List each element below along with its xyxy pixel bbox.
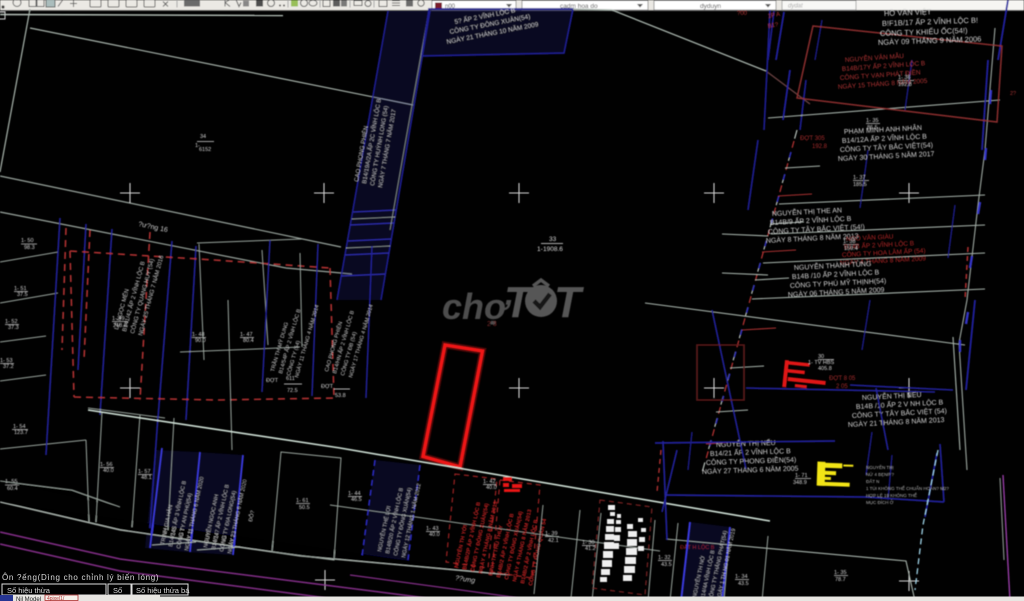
svg-text:90.0: 90.0 bbox=[195, 338, 206, 344]
svg-text:53.8: 53.8 bbox=[335, 393, 346, 399]
svg-text:60.4: 60.4 bbox=[7, 486, 18, 492]
svg-text:Nil Model: Nil Model bbox=[16, 597, 41, 601]
svg-text:185.5: 185.5 bbox=[853, 182, 867, 188]
svg-text:NGUYỄN THỊ: NGUYỄN THỊ bbox=[866, 464, 894, 470]
svg-text:Số hiệu thừa: Số hiệu thừa bbox=[7, 586, 51, 595]
svg-text:192.8: 192.8 bbox=[898, 82, 912, 88]
svg-text:1- 32: 1- 32 bbox=[658, 555, 671, 561]
svg-text:T: T bbox=[554, 278, 584, 327]
svg-text:159.4: 159.4 bbox=[844, 246, 858, 252]
svg-text:ĐỢT: ĐỢT bbox=[266, 378, 279, 384]
svg-text:78.7: 78.7 bbox=[835, 577, 846, 583]
svg-text:ĐỢT 8 05: ĐỢT 8 05 bbox=[829, 376, 856, 382]
svg-text:1 TÚI KHÔNG THỂ CHUẨN HOÀN? M2: 1 TÚI KHÔNG THỂ CHUẨN HOÀN? M2? bbox=[866, 485, 949, 491]
svg-text:348.9: 348.9 bbox=[793, 480, 807, 486]
svg-text:1908.6: 1908.6 bbox=[543, 246, 563, 253]
svg-text:50.5: 50.5 bbox=[299, 505, 310, 511]
svg-text:98.3: 98.3 bbox=[24, 245, 35, 251]
svg-text:1- 34: 1- 34 bbox=[735, 574, 748, 580]
svg-text:1- 36: 1- 36 bbox=[898, 75, 911, 81]
svg-text:72.5: 72.5 bbox=[287, 388, 298, 394]
svg-text:1- 61: 1- 61 bbox=[296, 498, 309, 504]
svg-text:40.0: 40.0 bbox=[429, 532, 440, 538]
svg-text:chợ: chợ bbox=[442, 286, 512, 327]
svg-text:46.5: 46.5 bbox=[351, 497, 362, 503]
svg-text:dydat: dydat bbox=[788, 4, 803, 10]
svg-text:1- 35: 1- 35 bbox=[834, 570, 847, 576]
svg-text:?00: ?00 bbox=[737, 11, 748, 17]
svg-text:Ôn ?ếng(Dìng cho chỉnh lý biến: Ôn ?ếng(Dìng cho chỉnh lý biến lóng) bbox=[2, 573, 159, 582]
svg-text:ĐỢT 305: ĐỢT 305 bbox=[800, 136, 825, 142]
svg-text:48.1: 48.1 bbox=[141, 475, 152, 481]
svg-text:1-: 1- bbox=[537, 246, 543, 253]
svg-text:2?: 2? bbox=[1010, 91, 1016, 97]
svg-text:33: 33 bbox=[549, 236, 557, 243]
svg-text:42.1: 42.1 bbox=[548, 538, 559, 544]
svg-text:ĐẤT N: ĐẤT N bbox=[866, 478, 879, 484]
svg-text:2 3: 2 3 bbox=[487, 321, 497, 328]
svg-text:dyduyn: dyduyn bbox=[700, 3, 721, 10]
svg-text:41.2: 41.2 bbox=[585, 546, 596, 552]
svg-text:611: 611 bbox=[286, 376, 295, 382]
svg-text:80.4: 80.4 bbox=[243, 338, 254, 344]
svg-text:ĐỢT: ĐỢT bbox=[321, 384, 334, 390]
svg-text:43.5: 43.5 bbox=[738, 581, 749, 587]
svg-text:2 05: 2 05 bbox=[836, 384, 848, 390]
svg-text:1- 37: 1- 37 bbox=[853, 175, 866, 181]
svg-text:123.7: 123.7 bbox=[14, 430, 28, 436]
svg-text:Số: Số bbox=[113, 586, 123, 595]
svg-text:218.8: 218.8 bbox=[113, 323, 127, 329]
svg-text:1- 35: 1- 35 bbox=[866, 118, 879, 124]
svg-text:6152: 6152 bbox=[199, 147, 211, 153]
svg-text:34: 34 bbox=[200, 134, 206, 140]
svg-text:192.8: 192.8 bbox=[812, 144, 828, 150]
svg-text:86.5: 86.5 bbox=[867, 125, 878, 131]
svg-text:1- 39: 1- 39 bbox=[545, 531, 558, 537]
svg-text:MỤC ĐÍCH Ở: MỤC ĐÍCH Ở bbox=[866, 499, 894, 505]
svg-text:1- 49: 1- 49 bbox=[112, 316, 125, 322]
svg-text:HỒ VĂN VIỆT: HỒ VĂN VIỆT bbox=[884, 6, 932, 18]
svg-text:37.3: 37.3 bbox=[8, 325, 19, 331]
svg-text:1- 71: 1- 71 bbox=[795, 473, 808, 479]
svg-text:HỢP LỆ 19 KHÔNG THỂ: HỢP LỆ 19 KHÔNG THỂ bbox=[866, 491, 917, 498]
svg-text:1- 38: 1- 38 bbox=[843, 239, 856, 245]
svg-text:40.0: 40.0 bbox=[103, 468, 114, 474]
svg-text:37.5: 37.5 bbox=[17, 292, 28, 298]
svg-text:Số hiệu thửa bá: Số hiệu thửa bá bbox=[136, 586, 190, 595]
svg-text:1- 50: 1- 50 bbox=[21, 238, 34, 244]
svg-text:NỮ 4 BẸNP ?: NỮ 4 BẸNP ? bbox=[866, 471, 895, 477]
svg-text:37.2: 37.2 bbox=[3, 364, 14, 370]
svg-text:40.0: 40.0 bbox=[486, 485, 497, 491]
svg-text:43.5: 43.5 bbox=[661, 562, 672, 568]
svg-text:4pixel1/: 4pixel1/ bbox=[47, 596, 65, 601]
svg-text:405.8: 405.8 bbox=[818, 366, 832, 372]
